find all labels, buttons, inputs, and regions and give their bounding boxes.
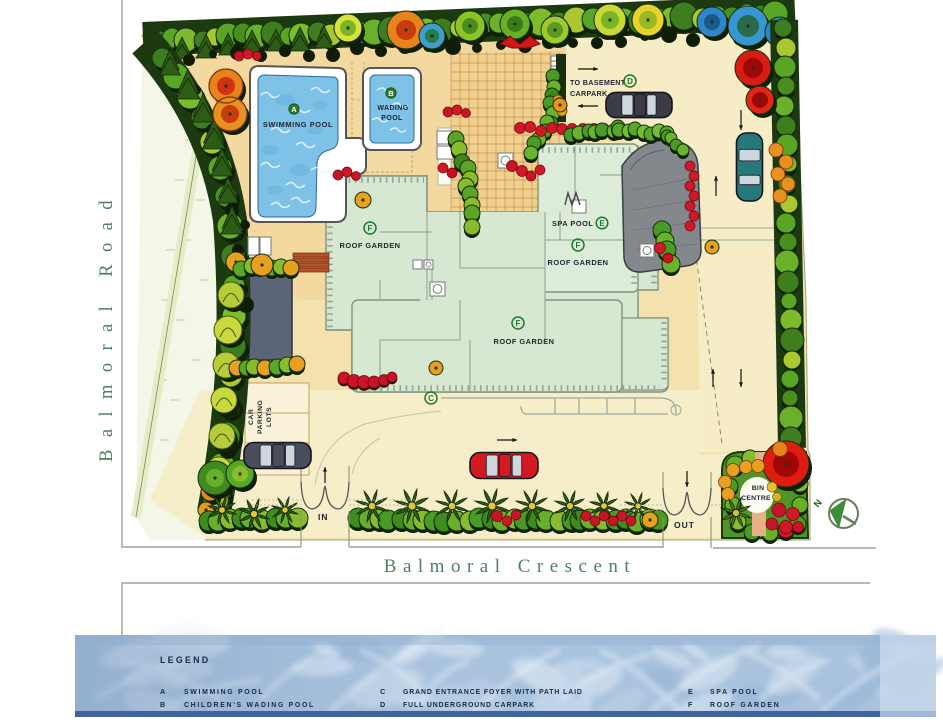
svg-text:ROOF GARDEN: ROOF GARDEN: [340, 241, 401, 250]
svg-text:IN: IN: [318, 512, 329, 522]
svg-text:PARKING: PARKING: [257, 400, 264, 434]
svg-text:POOL: POOL: [381, 115, 403, 122]
svg-text:CARPARK: CARPARK: [570, 89, 608, 98]
svg-text:B: B: [388, 89, 394, 98]
svg-text:BIN: BIN: [752, 485, 765, 492]
svg-text:CHILDREN'S WADING POOL: CHILDREN'S WADING POOL: [184, 702, 315, 709]
svg-text:A: A: [291, 105, 297, 114]
svg-text:F: F: [516, 319, 521, 328]
svg-text:F: F: [576, 241, 581, 250]
svg-text:LEGEND: LEGEND: [160, 655, 210, 665]
svg-text:ROOF GARDEN: ROOF GARDEN: [494, 337, 555, 346]
svg-text:SWIMMING POOL: SWIMMING POOL: [184, 689, 264, 696]
svg-text:D: D: [627, 77, 633, 86]
svg-text:SPA POOL: SPA POOL: [552, 219, 593, 228]
svg-text:CENTRE: CENTRE: [741, 495, 771, 502]
svg-text:OUT: OUT: [674, 520, 695, 530]
svg-text:CAR: CAR: [248, 409, 255, 425]
svg-text:B: B: [160, 700, 166, 709]
svg-text:D: D: [380, 700, 386, 709]
svg-text:E: E: [599, 219, 605, 228]
svg-text:C: C: [428, 394, 434, 403]
svg-text:Balmoral Crescent: Balmoral Crescent: [384, 556, 636, 577]
svg-text:F: F: [688, 700, 693, 709]
svg-text:ROOF GARDEN: ROOF GARDEN: [710, 702, 780, 709]
svg-text:Balmoral Road: Balmoral Road: [97, 188, 117, 462]
svg-text:SPA POOL: SPA POOL: [710, 689, 758, 696]
svg-text:ROOF GARDEN: ROOF GARDEN: [548, 258, 609, 267]
svg-text:TO BASEMENT: TO BASEMENT: [570, 78, 626, 87]
svg-text:LOTS: LOTS: [266, 407, 273, 427]
svg-text:GRAND ENTRANCE FOYER WITH PATH: GRAND ENTRANCE FOYER WITH PATH LAID: [403, 689, 583, 696]
svg-text:C: C: [380, 687, 386, 696]
svg-text:WADING: WADING: [377, 105, 408, 112]
svg-text:E: E: [688, 687, 694, 696]
svg-text:A: A: [160, 687, 166, 696]
svg-text:SWIMMING POOL: SWIMMING POOL: [263, 120, 333, 129]
svg-text:FULL UNDERGROUND CARPARK: FULL UNDERGROUND CARPARK: [403, 702, 535, 709]
svg-text:F: F: [368, 224, 373, 233]
